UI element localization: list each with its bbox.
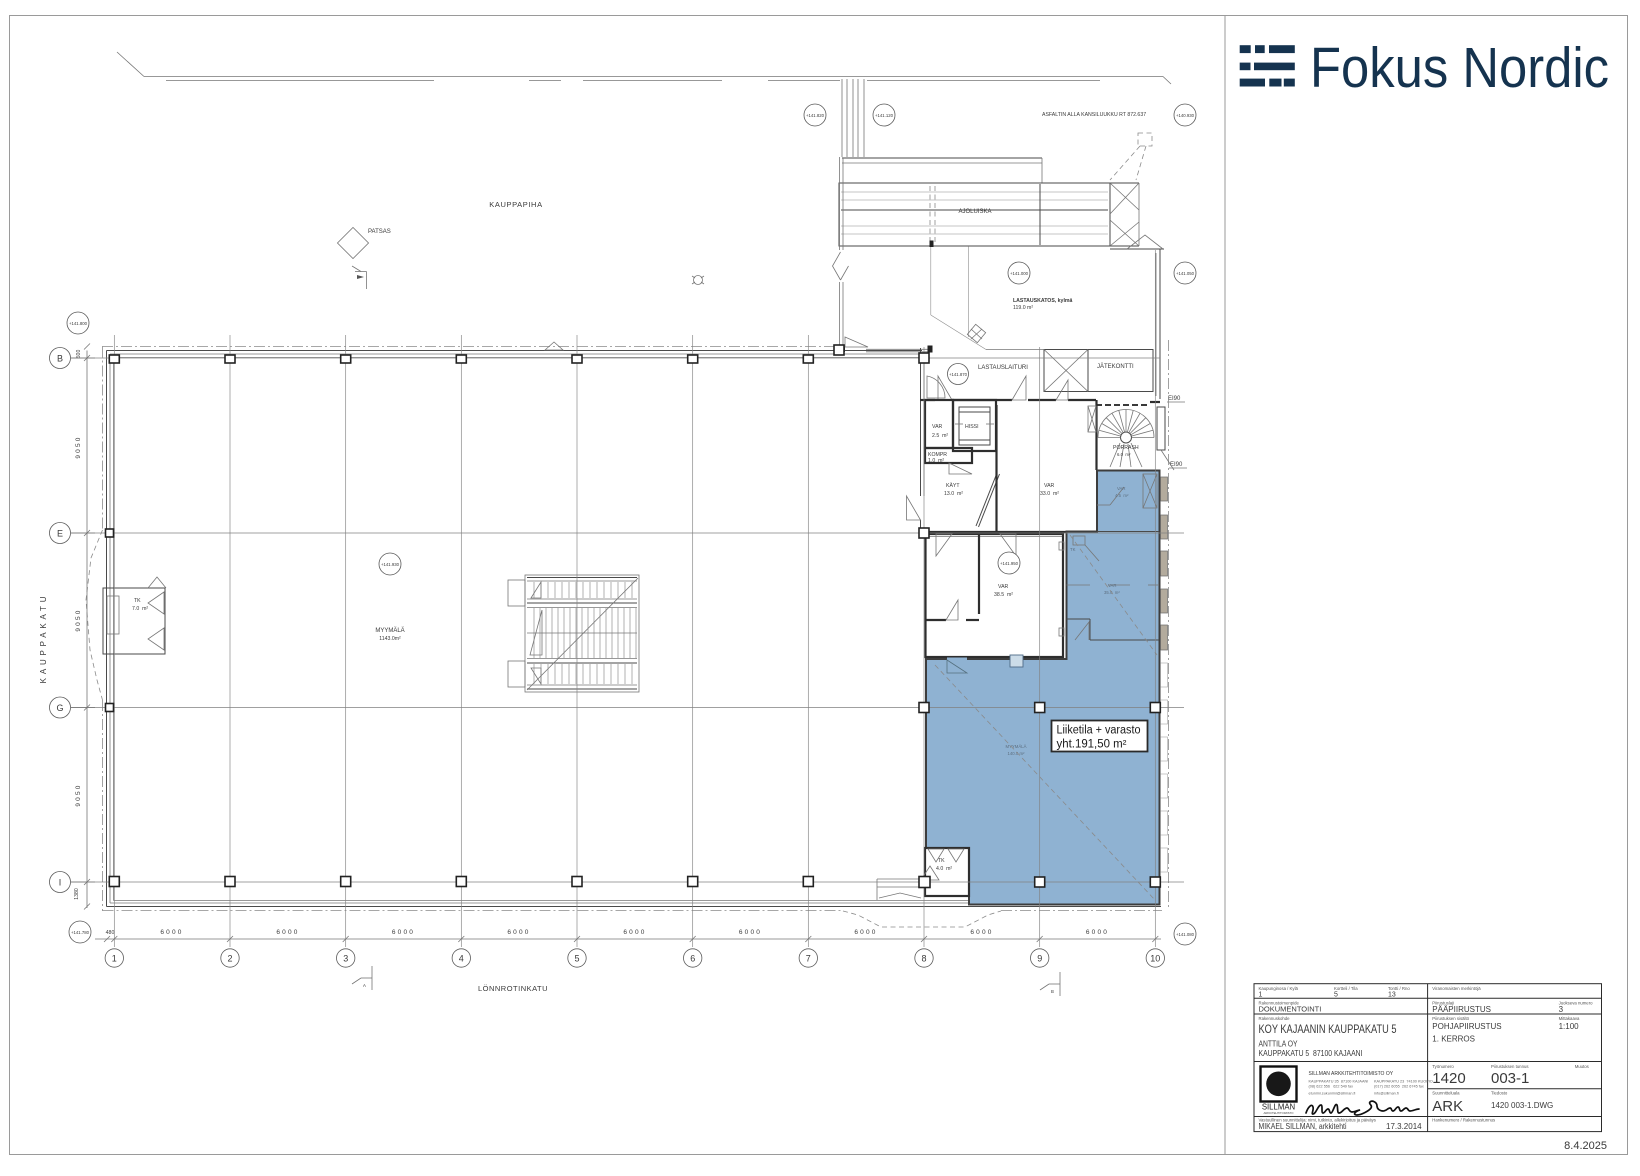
- svg-text:6000: 6000: [392, 929, 415, 936]
- svg-text:Piirustuksen sisältö: Piirustuksen sisältö: [1432, 1016, 1469, 1021]
- svg-text:Hankenumero / Rakennustunnus: Hankenumero / Rakennustunnus: [1432, 1118, 1495, 1123]
- svg-text:6: 6: [690, 954, 695, 964]
- svg-text:+141.050: +141.050: [1176, 271, 1195, 276]
- svg-text:2.5 m²: 2.5 m²: [932, 433, 948, 439]
- svg-text:HISSI: HISSI: [965, 424, 979, 430]
- svg-text:TK: TK: [1070, 547, 1076, 552]
- svg-text:Fokus Nordic: Fokus Nordic: [1310, 36, 1609, 100]
- svg-text:13.0 m²: 13.0 m²: [944, 491, 963, 497]
- svg-text:VAR: VAR: [1117, 486, 1126, 491]
- svg-text:13: 13: [1388, 992, 1396, 999]
- svg-text:LASTAUSLAITURI: LASTAUSLAITURI: [978, 365, 1028, 371]
- svg-text:ASFALTIN ALLA KANSILUUKKU RT 8: ASFALTIN ALLA KANSILUUKKU RT 872.637: [1042, 112, 1146, 118]
- svg-text:1420: 1420: [1432, 1070, 1465, 1087]
- svg-text:+141.950: +141.950: [1000, 561, 1019, 566]
- svg-text:Tontti / Rno: Tontti / Rno: [1388, 986, 1410, 991]
- svg-text:Kaupunginosa / Kylä: Kaupunginosa / Kylä: [1259, 986, 1299, 991]
- svg-text:Juokseva numero: Juokseva numero: [1559, 1001, 1594, 1006]
- svg-text:info@sillman.fi: info@sillman.fi: [1374, 1092, 1399, 1096]
- svg-text:Mittakaava: Mittakaava: [1559, 1016, 1580, 1021]
- svg-text:5: 5: [574, 954, 579, 964]
- svg-text:6000: 6000: [623, 929, 646, 936]
- svg-text:KAUPPAKATU: KAUPPAKATU: [39, 593, 48, 684]
- svg-text:(017) 262 6055 262 6745 fax: (017) 262 6055 262 6745 fax: [1374, 1085, 1424, 1089]
- svg-text:KOY KAJAANIN KAUPPAKATU 5: KOY KAJAANIN KAUPPAKATU 5: [1259, 1024, 1397, 1036]
- svg-text:E: E: [57, 529, 63, 539]
- svg-text:+141.930: +141.930: [381, 562, 400, 567]
- svg-text:8.4.2025: 8.4.2025: [1564, 1140, 1607, 1152]
- svg-text:Viranomaisten merkintöjä: Viranomaisten merkintöjä: [1432, 986, 1481, 991]
- svg-text:2: 2: [227, 954, 232, 964]
- svg-text:KAUPPAKATU 35 87100 KAJAANI: KAUPPAKATU 35 87100 KAJAANI: [1309, 1080, 1369, 1084]
- svg-text:6000: 6000: [160, 929, 183, 936]
- svg-text:LASTAUSKATOS, kylmä: LASTAUSKATOS, kylmä: [1013, 298, 1072, 304]
- svg-text:Muutos: Muutos: [1575, 1064, 1589, 1069]
- svg-text:480: 480: [106, 930, 115, 936]
- svg-text:VAR: VAR: [998, 584, 1009, 590]
- svg-text:SILLMAN ARKKITEHTITOIMISTO OY: SILLMAN ARKKITEHTITOIMISTO OY: [1309, 1071, 1394, 1077]
- svg-text:1: 1: [1259, 992, 1263, 999]
- svg-text:MIKAEL SILLMAN, arkkitehti: MIKAEL SILLMAN, arkkitehti: [1259, 1122, 1347, 1131]
- svg-text:ANTTILA OY: ANTTILA OY: [1259, 1040, 1299, 1049]
- svg-text:9050: 9050: [75, 608, 82, 631]
- svg-text:1:100: 1:100: [1559, 1022, 1580, 1031]
- svg-text:6.0 m²: 6.0 m²: [1117, 452, 1131, 457]
- svg-text:6000: 6000: [970, 929, 993, 936]
- svg-text:KAUPPAKATU 23 74100 KUOPIO: KAUPPAKATU 23 74100 KUOPIO: [1374, 1080, 1433, 1084]
- svg-text:yht.191,50 m²: yht.191,50 m²: [1057, 739, 1127, 751]
- svg-text:10: 10: [1150, 954, 1160, 964]
- svg-text:+141.870: +141.870: [949, 372, 968, 377]
- svg-text:4.0 m²: 4.0 m²: [936, 866, 952, 872]
- svg-text:B: B: [57, 354, 63, 364]
- svg-text:I: I: [59, 878, 62, 888]
- svg-text:6000: 6000: [276, 929, 299, 936]
- svg-text:119.0 m²: 119.0 m²: [1013, 305, 1033, 311]
- svg-text:1: 1: [112, 954, 117, 964]
- svg-text:+140.930: +140.930: [1176, 113, 1195, 118]
- svg-text:A: A: [363, 983, 366, 988]
- svg-text:6000: 6000: [739, 929, 762, 936]
- svg-text:6000: 6000: [507, 929, 530, 936]
- svg-text:17.3.2014: 17.3.2014: [1386, 1122, 1422, 1131]
- svg-text:+141.800: +141.800: [69, 321, 88, 326]
- svg-text:JÄTEKONTTI: JÄTEKONTTI: [1097, 363, 1134, 370]
- svg-text:VAR: VAR: [932, 424, 943, 430]
- svg-text:+141.000: +141.000: [1010, 271, 1029, 276]
- svg-text:PORRASH: PORRASH: [1113, 445, 1139, 451]
- svg-text:5: 5: [1334, 992, 1338, 999]
- svg-text:+141.120: +141.120: [875, 113, 894, 118]
- svg-text:3: 3: [1559, 1005, 1564, 1014]
- svg-text:8: 8: [921, 954, 926, 964]
- svg-text:(08) 622 556 622 549 fax: (08) 622 556 622 549 fax: [1309, 1085, 1354, 1089]
- svg-text:1380: 1380: [74, 888, 80, 900]
- svg-text:7.0 m²: 7.0 m²: [132, 606, 148, 612]
- svg-text:003-1: 003-1: [1491, 1070, 1529, 1087]
- svg-text:9050: 9050: [75, 783, 82, 806]
- svg-text:Työnumero: Työnumero: [1432, 1064, 1454, 1069]
- svg-text:38.5 m²: 38.5 m²: [994, 592, 1013, 598]
- svg-text:1. KERROS: 1. KERROS: [1432, 1035, 1475, 1044]
- svg-text:3: 3: [343, 954, 348, 964]
- svg-text:+141.820: +141.820: [806, 113, 825, 118]
- svg-text:VAR: VAR: [1044, 483, 1055, 489]
- svg-text:DOKUMENTOINTI: DOKUMENTOINTI: [1259, 1005, 1322, 1014]
- svg-text:EI90: EI90: [1168, 396, 1181, 402]
- svg-text:9: 9: [1037, 954, 1042, 964]
- svg-text:KAUPPAPIHA: KAUPPAPIHA: [489, 200, 542, 209]
- svg-text:Suunnitteluala: Suunnitteluala: [1432, 1091, 1460, 1096]
- svg-text:33.0 m²: 33.0 m²: [1040, 491, 1059, 497]
- svg-text:VAR: VAR: [1108, 583, 1117, 588]
- svg-text:Tiedosto: Tiedosto: [1491, 1091, 1508, 1096]
- svg-text:LÖNNROTINKATU: LÖNNROTINKATU: [478, 984, 548, 993]
- svg-text:TK: TK: [938, 858, 945, 864]
- svg-text:+141.080: +141.080: [1176, 932, 1195, 937]
- svg-text:Piirustuksen tunnus: Piirustuksen tunnus: [1491, 1064, 1529, 1069]
- svg-text:1420 003-1.DWG: 1420 003-1.DWG: [1491, 1101, 1553, 1110]
- svg-text:6000: 6000: [854, 929, 877, 936]
- svg-text:9050: 9050: [75, 435, 82, 458]
- svg-text:140.0 m²: 140.0 m²: [1008, 751, 1026, 756]
- svg-text:POHJAPIIRUSTUS: POHJAPIIRUSTUS: [1432, 1022, 1501, 1031]
- svg-text:+141.780: +141.780: [71, 930, 90, 935]
- svg-text:AJOLUISKA: AJOLUISKA: [958, 209, 991, 215]
- svg-text:6000: 6000: [1086, 929, 1109, 936]
- svg-text:1.0 m²: 1.0 m²: [928, 458, 944, 464]
- svg-text:4.5 m²: 4.5 m²: [1115, 493, 1129, 498]
- svg-text:TK: TK: [134, 598, 141, 604]
- svg-text:1143.0m²: 1143.0m²: [379, 636, 401, 642]
- svg-text:Kortteli / Tila: Kortteli / Tila: [1334, 986, 1358, 991]
- svg-text:ARK: ARK: [1432, 1098, 1463, 1115]
- svg-text:ARKKITEHTITOIMISTO: ARKKITEHTITOIMISTO: [1264, 1111, 1295, 1115]
- svg-text:7: 7: [806, 954, 811, 964]
- svg-text:KAUPPAKATU 5 87100 KAJAANI: KAUPPAKATU 5 87100 KAJAANI: [1259, 1049, 1363, 1058]
- svg-text:Rakennuskohde: Rakennuskohde: [1259, 1016, 1291, 1021]
- svg-text:Liiketila + varasto: Liiketila + varasto: [1057, 725, 1141, 737]
- svg-text:MYYMÄLÄ: MYYMÄLÄ: [1005, 744, 1026, 749]
- svg-text:PÄÄPIIRUSTUS: PÄÄPIIRUSTUS: [1432, 1005, 1491, 1014]
- svg-text:B: B: [1051, 989, 1054, 994]
- svg-text:KÄYT: KÄYT: [946, 482, 960, 489]
- svg-text:etunimi.sukunimi@sillman.fi: etunimi.sukunimi@sillman.fi: [1309, 1092, 1356, 1096]
- svg-text:G: G: [56, 703, 63, 713]
- svg-text:500: 500: [76, 350, 82, 359]
- svg-text:4: 4: [459, 954, 464, 964]
- svg-text:MYYMÄLÄ: MYYMÄLÄ: [375, 627, 404, 634]
- svg-text:PATSAS: PATSAS: [368, 229, 391, 235]
